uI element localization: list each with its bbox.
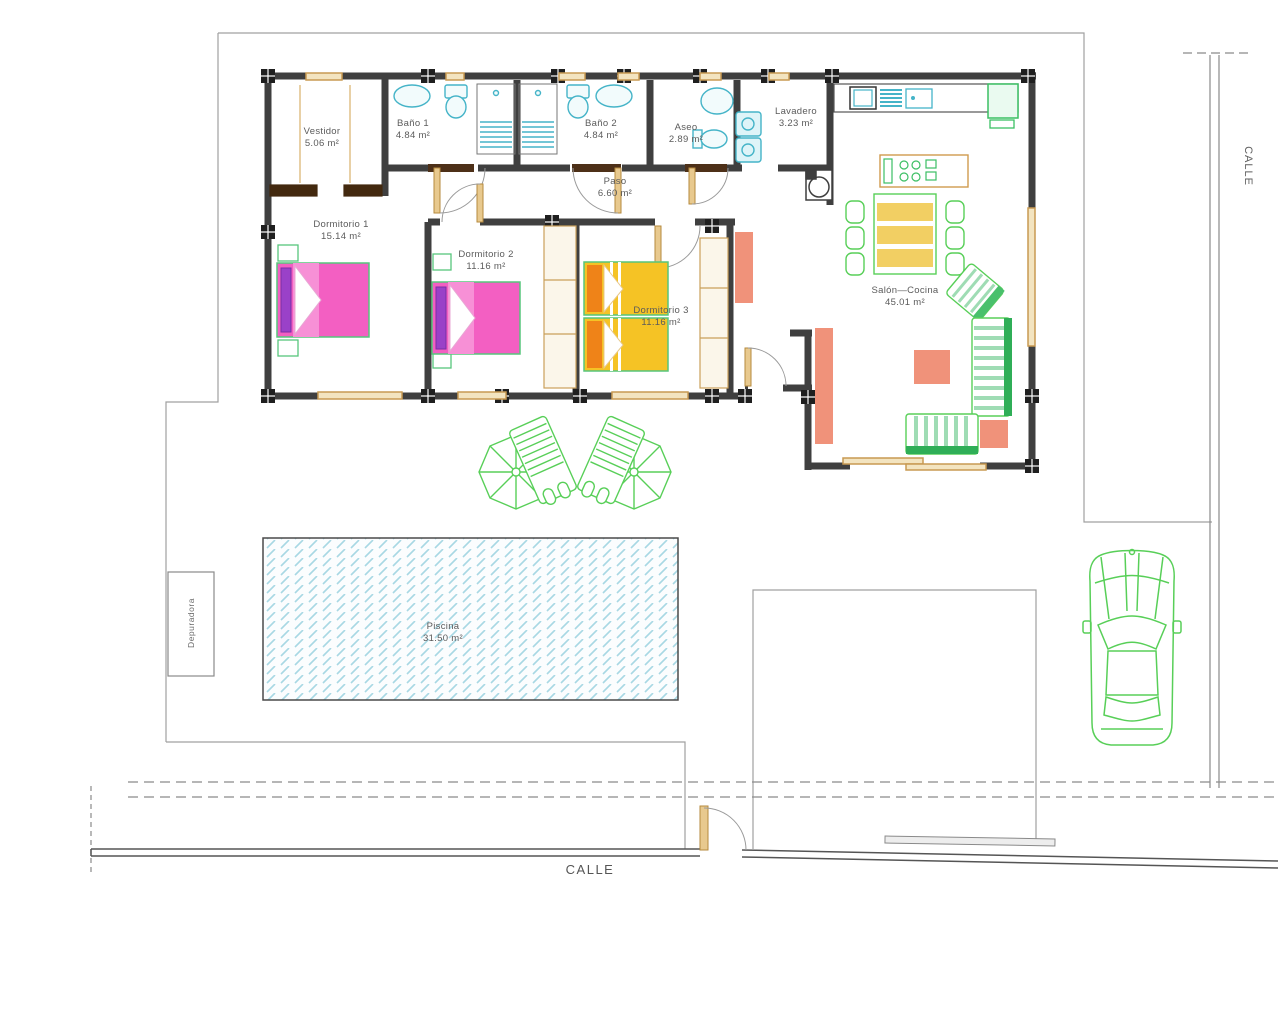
- car: [1083, 550, 1181, 746]
- room-label-aseo: Aseo2.89 m²: [669, 122, 703, 147]
- room-label-piscina: Piscina31.50 m²: [423, 621, 463, 646]
- terrace-loungers: [479, 415, 671, 509]
- room-label-dormitorio-2: Dormitorio 211.16 m²: [458, 249, 513, 274]
- pedestrian-gate: [700, 806, 746, 850]
- room-label-lavadero: Lavadero3.23 m²: [775, 106, 817, 131]
- depuradora-label: Depuradora: [186, 598, 196, 648]
- dining-set: [846, 194, 964, 275]
- site-boundary: [166, 33, 1212, 849]
- kitchen-fixtures: [834, 84, 1018, 187]
- perimeter-wall: [91, 849, 1278, 868]
- floor-plan-canvas: Vestidor5.06 m² Baño 14.84 m² Baño 24.84…: [0, 0, 1280, 1024]
- room-label-salon-cocina: Salón—Cocina45.01 m²: [872, 285, 939, 310]
- room-label-dormitorio-1: Dormitorio 115.14 m²: [313, 219, 368, 244]
- water-heater: [806, 170, 832, 200]
- bathroom-fixtures: [394, 84, 761, 162]
- room-label-vestidor: Vestidor5.06 m²: [304, 126, 341, 151]
- room-label-paso: Paso6.60 m²: [598, 176, 632, 201]
- room-label-bano-2: Baño 24.84 m²: [584, 118, 618, 143]
- room-label-bano-1: Baño 14.84 m²: [396, 118, 430, 143]
- street-label-right: CALLE: [1242, 146, 1254, 186]
- pool: [263, 538, 678, 700]
- street-label-bottom: CALLE: [566, 862, 615, 877]
- room-label-dormitorio-3: Dormitorio 311.16 m²: [633, 305, 688, 330]
- floor-plan-drawing: [0, 0, 1280, 1024]
- sliding-gate: [885, 836, 1055, 846]
